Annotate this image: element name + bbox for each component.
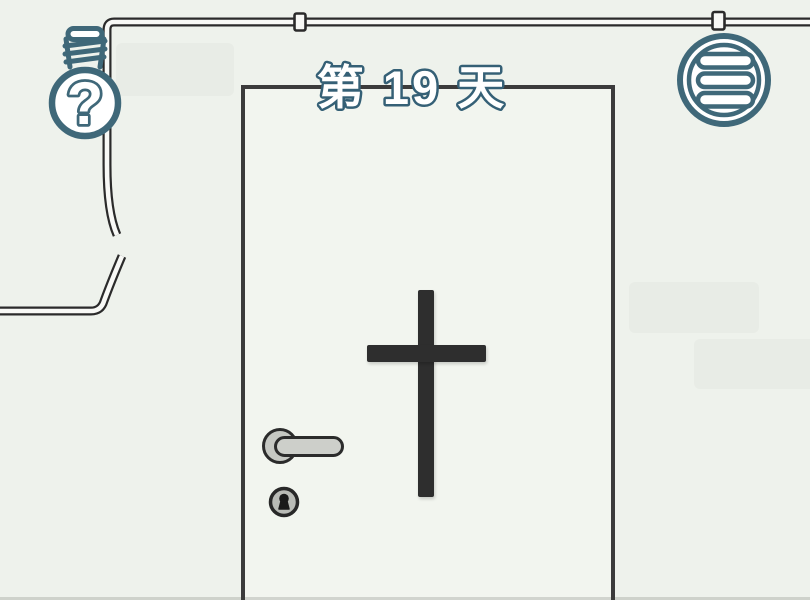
wall-patch <box>116 43 234 96</box>
menu-bar <box>698 54 753 68</box>
keyhole-slot-base <box>279 501 289 510</box>
pipe-coupling <box>713 12 725 30</box>
bulb-thread <box>65 41 105 46</box>
pipe-lower-segment <box>0 256 122 311</box>
door-handle[interactable] <box>274 436 344 457</box>
menu-bar <box>698 93 753 107</box>
lightbulb-question-icon: ? <box>45 26 125 140</box>
game-scene: 第 19 天 ? <box>0 0 810 600</box>
cross[interactable] <box>367 290 486 497</box>
question-mark: ? <box>67 70 104 137</box>
menu-bar <box>698 74 753 88</box>
wall-patch <box>694 339 810 389</box>
cross-vertical-bar <box>418 290 434 497</box>
bulb-cap <box>68 29 102 40</box>
pipe-lower-core <box>0 256 122 311</box>
hint-button[interactable]: ? <box>45 26 125 140</box>
cross-horizontal-bar <box>367 345 486 362</box>
keyhole[interactable] <box>268 486 300 518</box>
hamburger-menu-icon <box>674 30 774 130</box>
bulb-thread <box>65 49 105 54</box>
wall-patch <box>629 282 759 333</box>
menu-button[interactable] <box>674 30 774 130</box>
pipe-coupling <box>295 14 306 31</box>
